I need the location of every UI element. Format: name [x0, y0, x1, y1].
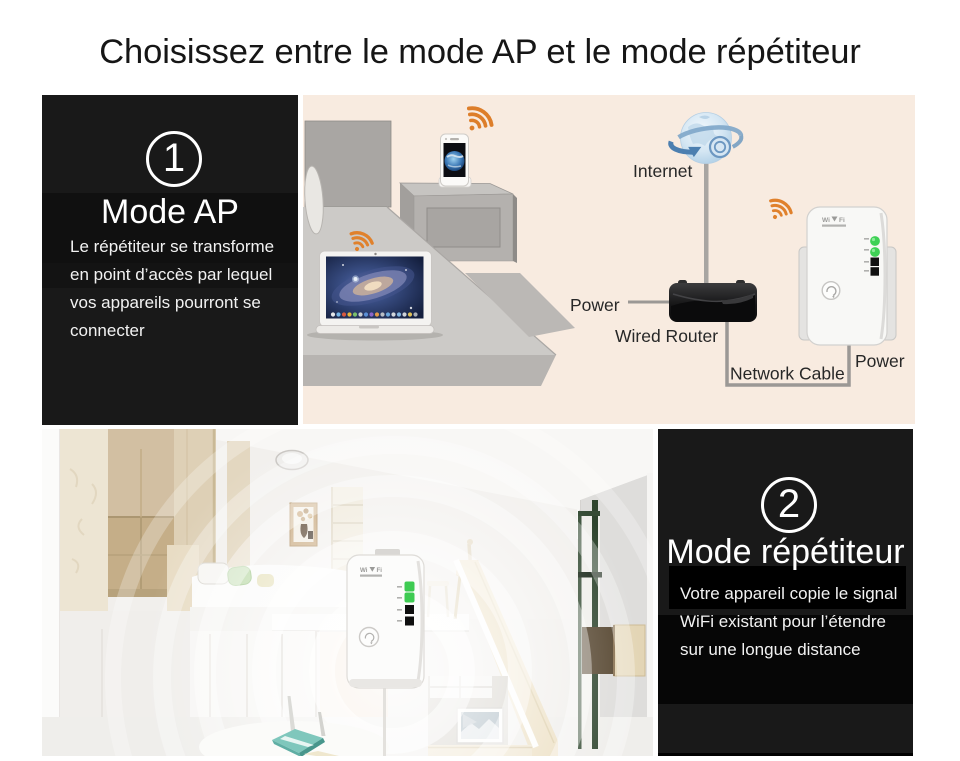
svg-text:Internet: Internet [633, 161, 692, 181]
svg-text:Network Cable: Network Cable [730, 364, 845, 384]
svg-text:Power: Power [855, 351, 905, 371]
svg-text:Wired Router: Wired Router [615, 326, 718, 346]
svg-text:Fi: Fi [377, 567, 383, 574]
svg-text:Power: Power [570, 295, 620, 315]
svg-text:Fi: Fi [839, 217, 845, 224]
svg-text:Wi: Wi [360, 567, 368, 574]
svg-text:Wi: Wi [822, 217, 830, 224]
